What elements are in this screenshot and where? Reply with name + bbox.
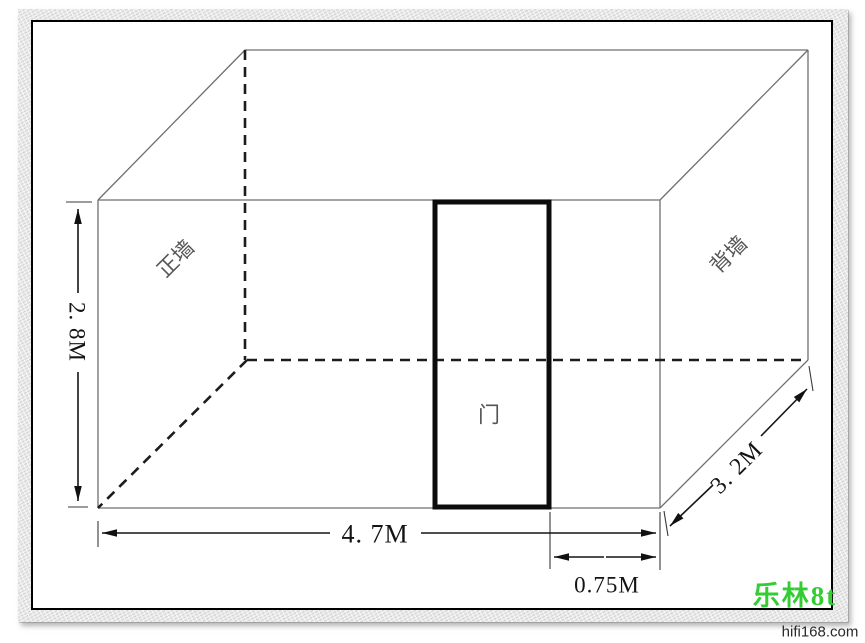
dim-depth-label: 3. 2M [706, 437, 768, 499]
room-hidden-edges [98, 50, 808, 508]
page: 2. 8M 4. 7M 0.75M 3. 2M 正墙 背墙 门 乐林8t hif… [0, 0, 865, 643]
site-url-text: hifi168.com [782, 624, 859, 641]
room-diagram: 2. 8M 4. 7M 0.75M 3. 2M 正墙 背墙 门 乐林8t hif… [0, 0, 865, 643]
room-visible-edges [98, 50, 808, 508]
dim-width-label: 4. 7M [341, 520, 408, 549]
back-wall-label: 背墙 [706, 232, 752, 278]
door-label: 门 [478, 403, 500, 428]
dim-height-label: 2. 8M [65, 302, 90, 362]
front-wall-label: 正墙 [153, 236, 199, 282]
dim-door-offset-label: 0.75M [574, 573, 640, 598]
door-outline [435, 202, 549, 507]
watermark-text: 乐林8t [753, 581, 838, 611]
